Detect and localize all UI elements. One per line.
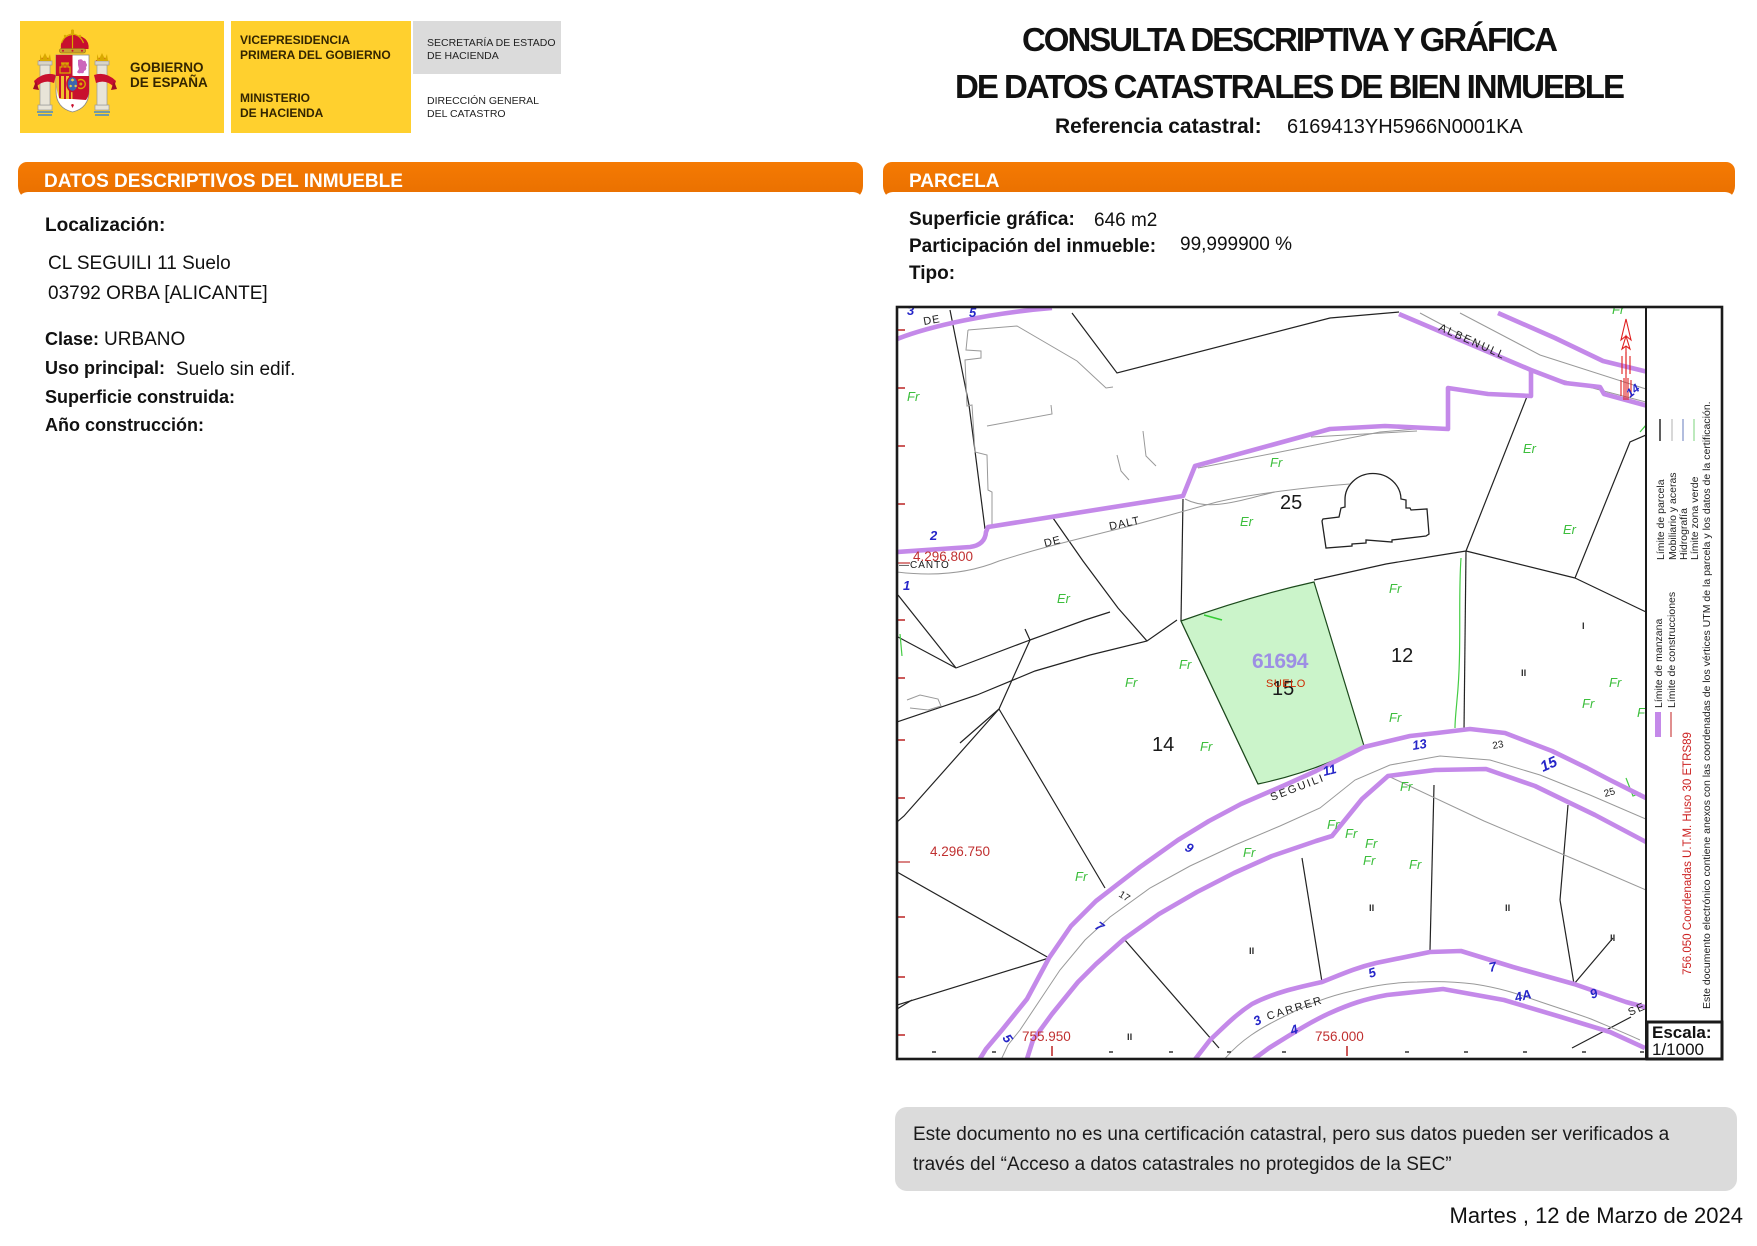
svg-text:II: II [1505,903,1510,914]
svg-text:II: II [1249,946,1254,957]
svg-text:2: 2 [929,528,938,543]
svg-text:Er: Er [1057,591,1071,606]
svg-text:Límite de manzana: Límite de manzana [1653,619,1665,708]
svg-text:12: 12 [1391,645,1413,667]
svg-text:Fr: Fr [907,389,920,404]
svg-text:9: 9 [1183,839,1197,856]
svg-text:5: 5 [1366,964,1378,981]
svg-text:Fr: Fr [1409,857,1422,872]
svg-text:Er: Er [1563,522,1577,537]
svg-text:I: I [1582,621,1585,632]
svg-text:II: II [1521,668,1526,679]
svg-text:Fr: Fr [1200,739,1213,754]
svg-text:4.296.800: 4.296.800 [913,549,973,564]
svg-text:Fr: Fr [1179,657,1192,672]
svg-text:61694: 61694 [1252,650,1309,673]
svg-text:Fr: Fr [1327,817,1340,832]
svg-text:Fr: Fr [1270,455,1283,470]
svg-text:14: 14 [1152,734,1174,756]
svg-text:Er: Er [1523,441,1537,456]
svg-text:Fr: Fr [1363,853,1376,868]
svg-text:Límite de construcciones: Límite de construcciones [1666,592,1678,708]
svg-text:13: 13 [1411,736,1428,753]
svg-text:Límite zona verde: Límite zona verde [1689,476,1701,560]
svg-text:4.296.750: 4.296.750 [930,844,990,859]
svg-text:ALBENULL: ALBENULL [1437,322,1508,362]
svg-text:Fr: Fr [1345,826,1358,841]
svg-text:25: 25 [1280,492,1302,514]
svg-text:Fr: Fr [1389,581,1402,596]
svg-text:Fr: Fr [1582,696,1595,711]
svg-text:II: II [1127,1032,1132,1043]
svg-text:23: 23 [1492,739,1505,752]
svg-text:Este documento electrónico con: Este documento electrónico contiene anex… [1701,401,1713,1009]
svg-text:Fr: Fr [1243,845,1256,860]
svg-text:3: 3 [1251,1012,1265,1029]
svg-text:DALT: DALT [1108,515,1141,533]
svg-text:Fr: Fr [1365,836,1378,851]
svg-text:25: 25 [1603,786,1617,800]
svg-text:1/1000: 1/1000 [1652,1040,1704,1059]
svg-text:SUELO: SUELO [1266,678,1306,690]
svg-text:1: 1 [903,578,910,593]
svg-text:756.050 Coordenadas U.T.M. Hus: 756.050 Coordenadas U.T.M. Huso 30 ETRS8… [1682,732,1694,975]
svg-text:Fr: Fr [1612,302,1625,317]
svg-text:Fr: Fr [1400,779,1413,794]
svg-text:Fr: Fr [1075,869,1088,884]
svg-text:7: 7 [1092,918,1107,935]
svg-text:756.000: 756.000 [1315,1029,1364,1044]
svg-text:3: 3 [907,303,915,318]
svg-text:755.950: 755.950 [1022,1029,1071,1044]
svg-text:Er: Er [1240,514,1254,529]
svg-text:II: II [1610,933,1615,944]
svg-text:Fr: Fr [1609,675,1622,690]
svg-text:Fr: Fr [1389,710,1402,725]
svg-text:Fr: Fr [1125,675,1138,690]
svg-text:Fr: Fr [1637,705,1650,720]
svg-text:15: 15 [1538,753,1561,776]
svg-text:4A: 4A [1512,986,1533,1005]
svg-text:Límite de parcela: Límite de parcela [1655,479,1667,560]
svg-text:DE: DE [1043,534,1063,550]
svg-text:II: II [1369,903,1374,914]
